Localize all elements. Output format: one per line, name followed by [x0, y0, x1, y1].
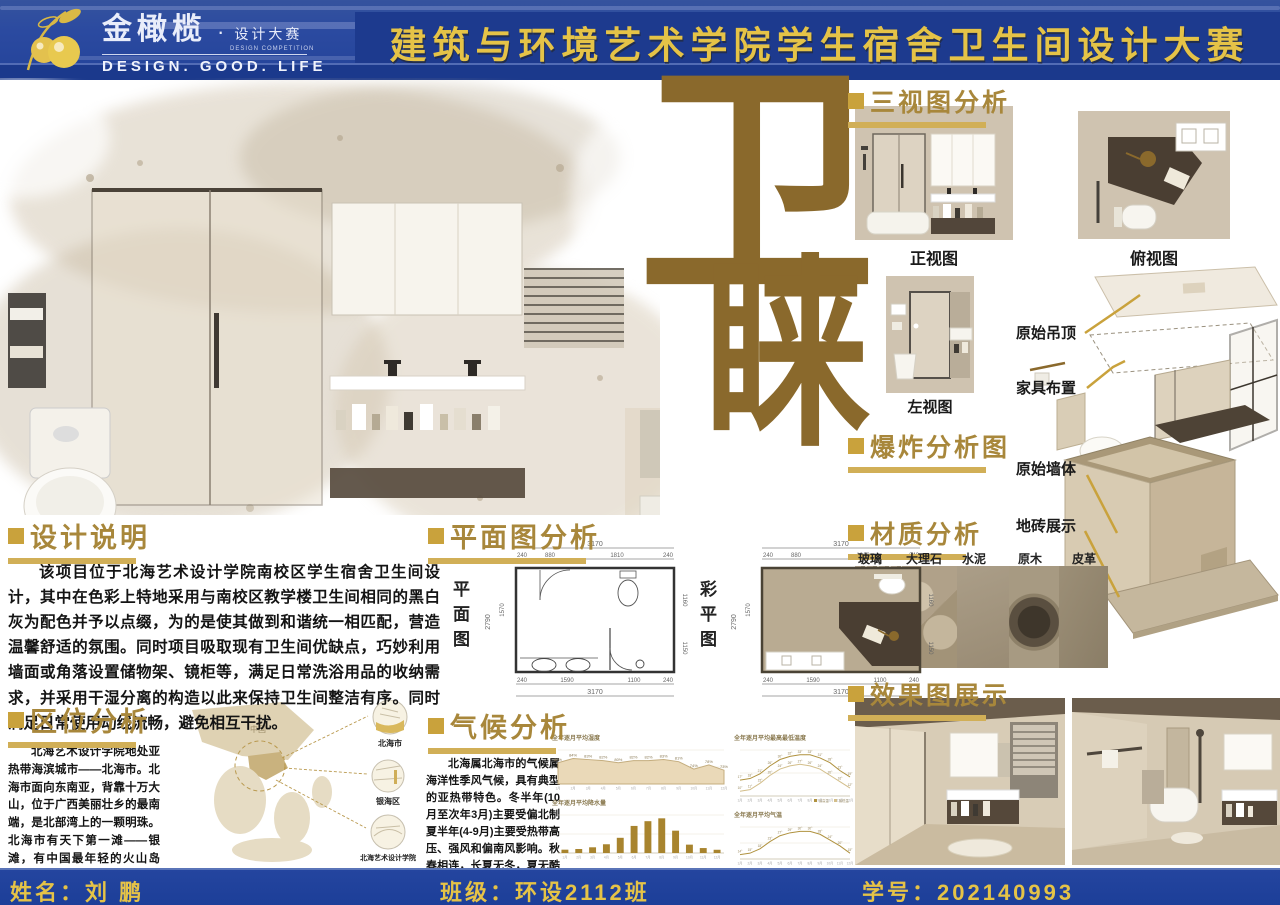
svg-text:82%: 82%: [645, 755, 653, 760]
svg-text:73%: 73%: [720, 764, 728, 769]
top-view-label: 俯视图: [1078, 245, 1230, 269]
svg-text:3月: 3月: [758, 862, 763, 866]
svg-text:1月: 1月: [556, 787, 561, 791]
section-bullet-icon: [848, 438, 864, 454]
svg-text:12月: 12月: [847, 862, 854, 866]
explosion-label-furniture: 家具布置: [1016, 379, 1076, 397]
section-title: 材质分析: [870, 515, 982, 551]
dimension-label: 880: [791, 553, 802, 559]
chart-title: 全年逐月平均气温: [734, 810, 854, 819]
svg-text:7月: 7月: [645, 856, 650, 860]
svg-text:30°: 30°: [808, 826, 814, 830]
svg-text:9月: 9月: [818, 799, 823, 803]
svg-text:2月: 2月: [571, 787, 576, 791]
humidity-chart: 全年逐月平均湿度 80%84%83%82%80%82%82%83%81%74%7…: [552, 733, 728, 791]
section-title: 设计说明: [30, 516, 150, 555]
chart-title: 全年逐月平均湿度: [552, 733, 728, 742]
dimension-label: 240: [663, 553, 674, 559]
svg-text:30°: 30°: [798, 826, 804, 830]
dimension-label: 1150: [681, 642, 687, 656]
chart-title: 全年逐月平均降水量: [552, 798, 728, 807]
svg-text:11月: 11月: [837, 799, 844, 803]
svg-text:28°: 28°: [818, 829, 824, 833]
average-temperature-chart: 全年逐月平均气温 14°15°18°23°27°29°30°30°28°24°2…: [734, 810, 854, 866]
svg-text:82%: 82%: [599, 755, 607, 760]
svg-text:14°: 14°: [738, 850, 744, 854]
section-plan-header: 平面图分析: [428, 516, 600, 564]
svg-text:5月: 5月: [616, 787, 621, 791]
svg-text:2月: 2月: [576, 856, 581, 860]
section-underline: [8, 742, 136, 748]
svg-text:10月: 10月: [686, 856, 693, 860]
svg-text:8月: 8月: [661, 787, 666, 791]
svg-text:9月: 9月: [673, 856, 678, 860]
svg-text:2月: 2月: [748, 862, 753, 866]
svg-text:20°: 20°: [828, 770, 834, 774]
map-inset-label: 银海区: [375, 796, 400, 806]
hero-render-image: [0, 78, 660, 515]
svg-text:7月: 7月: [646, 787, 651, 791]
svg-text:20°: 20°: [838, 841, 844, 845]
dimension-label: 1590: [806, 678, 820, 684]
material-label-wood: 原木: [1018, 550, 1042, 567]
svg-text:10月: 10月: [827, 799, 834, 803]
svg-text:10月: 10月: [690, 787, 697, 791]
brand-slogan: DESIGN. GOOD. LIFE: [102, 58, 327, 75]
svg-text:18°: 18°: [748, 774, 754, 778]
brand-name: 金橄榄: [102, 4, 207, 48]
student-name: 姓名：刘 鹏: [10, 875, 144, 905]
svg-text:2月: 2月: [748, 799, 753, 803]
material-label-glass: 玻璃: [858, 550, 882, 567]
brand-logo: 金橄榄 · 设计大赛 DESIGN COMPETITION DESIGN. GO…: [14, 4, 327, 75]
section-title: 效果图展示: [870, 676, 1010, 712]
dimension-label: 240: [663, 678, 674, 684]
brand-divider: [102, 54, 307, 55]
section-underline: [428, 558, 586, 564]
svg-text:12月: 12月: [721, 787, 728, 791]
svg-text:31°: 31°: [818, 753, 824, 757]
poster-root: 金橄榄 · 设计大赛 DESIGN COMPETITION DESIGN. GO…: [0, 0, 1280, 905]
material-swatch-wood: [1009, 566, 1059, 668]
svg-text:24°: 24°: [828, 835, 834, 839]
dimension-label: 1570: [746, 603, 752, 617]
dimension-label: 1590: [560, 678, 574, 684]
student-id: 学号：202140993: [862, 875, 1074, 905]
dimension-label: 240: [517, 678, 528, 684]
student-class: 班级：环设2112班: [440, 875, 650, 905]
svg-text:11月: 11月: [706, 787, 713, 791]
svg-text:26°: 26°: [768, 761, 774, 765]
section-underline: [848, 122, 986, 128]
svg-text:11月: 11月: [700, 856, 707, 860]
svg-text:4月: 4月: [768, 862, 773, 866]
svg-text:4月: 4月: [768, 799, 773, 803]
section-title: 爆炸分析图: [870, 428, 1010, 464]
section-underline: [848, 715, 986, 721]
precipitation-chart: 全年逐月平均降水量 1月2月3月4月5月6月7月8月9月10月11月12月: [552, 798, 728, 860]
svg-text:23°: 23°: [838, 766, 844, 770]
explosion-label-tile: 地砖展示: [1016, 517, 1076, 535]
svg-text:30°: 30°: [778, 755, 784, 759]
svg-text:10°: 10°: [738, 786, 744, 790]
svg-text:8月: 8月: [808, 799, 813, 803]
svg-text:10月: 10月: [827, 862, 834, 866]
section-title: 气候分析: [450, 706, 570, 745]
svg-text:5月: 5月: [778, 799, 783, 803]
svg-text:27°: 27°: [798, 759, 804, 763]
section-bullet-icon: [8, 528, 24, 544]
explosion-label-ceiling: 原始吊顶: [1016, 324, 1076, 342]
svg-text:83%: 83%: [660, 754, 668, 759]
svg-text:24°: 24°: [818, 764, 824, 768]
svg-text:11°: 11°: [748, 785, 753, 789]
svg-text:18°: 18°: [758, 844, 764, 848]
svg-text:29°: 29°: [788, 828, 794, 832]
svg-text:6月: 6月: [631, 787, 636, 791]
map-inset-label: 北海市: [378, 738, 402, 748]
dimension-label: 1160: [681, 594, 687, 608]
dimension-label: 1570: [500, 603, 506, 617]
dimension-label: 1810: [610, 553, 624, 559]
svg-text:20°: 20°: [768, 770, 774, 774]
svg-text:4月: 4月: [601, 787, 606, 791]
chart-title: 全年逐月平均最高最低温度: [734, 733, 854, 742]
top-view-image: [1078, 111, 1230, 239]
svg-text:15°: 15°: [748, 848, 754, 852]
dimension-label: 2790: [731, 614, 738, 630]
svg-text:8月: 8月: [808, 862, 813, 866]
section-title: 区位分析: [30, 700, 150, 739]
left-view-image: [886, 276, 974, 393]
dimension-label: 3170: [833, 689, 849, 696]
color-plan-label: 彩平图: [694, 580, 719, 655]
material-swatch-leather: [1059, 566, 1108, 668]
svg-text:8月: 8月: [659, 856, 664, 860]
svg-text:33°: 33°: [798, 750, 804, 754]
svg-text:5月: 5月: [618, 856, 623, 860]
svg-text:12°: 12°: [848, 783, 854, 787]
svg-text:23°: 23°: [768, 837, 774, 841]
svg-text:1月: 1月: [562, 856, 567, 860]
brand-subtitle: 设计大赛: [234, 24, 302, 44]
svg-text:33°: 33°: [808, 750, 814, 754]
svg-text:1月: 1月: [738, 862, 743, 866]
section-bullet-icon: [848, 525, 864, 541]
svg-text:82%: 82%: [629, 755, 637, 760]
section-bullet-icon: [848, 686, 864, 702]
svg-text:24°: 24°: [778, 764, 784, 768]
material-label-marble: 大理石: [906, 550, 942, 567]
svg-text:74%: 74%: [690, 763, 698, 768]
brand-subtitle-en: DESIGN COMPETITION: [230, 46, 327, 52]
svg-text:32°: 32°: [788, 751, 794, 755]
section-render-header: 效果图展示: [848, 676, 1010, 721]
front-view-label: 正视图: [855, 245, 1013, 269]
hero-title-char-2: 睐: [703, 262, 871, 451]
section-design-header: 设计说明: [8, 516, 150, 564]
plan-drawing: 3170 240 880 1810 240 2790 1570 1160 115…: [478, 540, 693, 702]
footer-bar: 姓名：刘 鹏 班级：环设2112班 学号：202140993: [0, 868, 1280, 905]
material-label-leather: 皮革: [1072, 550, 1096, 567]
svg-text:19°: 19°: [848, 772, 854, 776]
svg-text:12月: 12月: [847, 799, 854, 803]
svg-text:3月: 3月: [590, 856, 595, 860]
dimension-label: 2790: [485, 614, 492, 630]
svg-text:80%: 80%: [554, 757, 562, 762]
window-blinds: [524, 268, 624, 348]
svg-text:27°: 27°: [778, 831, 784, 835]
left-view-label: 左视图: [862, 396, 998, 417]
svg-text:6月: 6月: [788, 862, 793, 866]
svg-text:6月: 6月: [632, 856, 637, 860]
svg-text:3月: 3月: [586, 787, 591, 791]
render-image-2: [1072, 698, 1280, 865]
svg-text:16°: 16°: [838, 777, 844, 781]
section-bullet-icon: [848, 93, 864, 109]
section-underline: [428, 748, 556, 754]
svg-text:11月: 11月: [837, 862, 844, 866]
svg-text:80%: 80%: [614, 757, 622, 762]
temperature-range-chart: 全年逐月平均最高最低温度 17°18°21°26°30°32°33°33°31°…: [734, 733, 854, 803]
svg-text:12月: 12月: [714, 856, 721, 860]
dimension-label: 1100: [628, 678, 642, 684]
olive-logo-icon: [14, 6, 92, 74]
section-bullet-icon: [428, 718, 444, 734]
svg-text:4月: 4月: [604, 856, 609, 860]
svg-text:7月: 7月: [798, 862, 803, 866]
render-image-1: [855, 698, 1065, 865]
section-bullet-icon: [8, 712, 24, 728]
svg-text:3月: 3月: [758, 799, 763, 803]
section-location-header: 区位分析: [8, 700, 150, 748]
svg-text:81%: 81%: [675, 756, 683, 761]
svg-text:15°: 15°: [758, 778, 764, 782]
svg-text:83%: 83%: [584, 754, 592, 759]
section-underline: [848, 467, 986, 473]
map-inset-label: 北海艺术设计学院: [360, 853, 416, 862]
dimension-label: 1150: [927, 642, 933, 656]
brand-separator: ·: [217, 19, 224, 45]
section-bullet-icon: [428, 528, 444, 544]
explosion-label-wall: 原始墙体: [1016, 460, 1077, 478]
svg-text:6月: 6月: [788, 799, 793, 803]
dimension-label: 240: [763, 553, 774, 559]
svg-text:26°: 26°: [808, 761, 814, 765]
svg-text:21°: 21°: [758, 769, 764, 773]
section-title: 平面图分析: [450, 516, 600, 555]
svg-text:84%: 84%: [569, 753, 577, 758]
svg-text:26°: 26°: [788, 761, 794, 765]
dimension-label: 3170: [833, 541, 849, 548]
svg-text:78%: 78%: [705, 759, 713, 764]
svg-text:28°: 28°: [828, 758, 834, 762]
svg-text:5月: 5月: [778, 862, 783, 866]
dimension-label: 1160: [927, 594, 933, 608]
section-three-view-header: 三视图分析: [848, 83, 1010, 128]
dimension-label: 3170: [587, 689, 603, 696]
svg-text:17°: 17°: [738, 775, 744, 779]
material-label-cement: 水泥: [962, 550, 986, 567]
section-climate-header: 气候分析: [428, 706, 570, 754]
svg-text:15°: 15°: [848, 848, 854, 852]
material-swatch-cement: [957, 566, 1009, 668]
svg-text:9月: 9月: [818, 862, 823, 866]
svg-text:9月: 9月: [676, 787, 681, 791]
section-title: 三视图分析: [870, 83, 1010, 119]
section-explosion-header: 爆炸分析图: [848, 428, 1010, 473]
svg-text:7月: 7月: [798, 799, 803, 803]
svg-text:1月: 1月: [738, 799, 743, 803]
section-underline: [8, 558, 136, 564]
dimension-label: 240: [763, 678, 774, 684]
plan-label: 平面图: [447, 580, 472, 655]
